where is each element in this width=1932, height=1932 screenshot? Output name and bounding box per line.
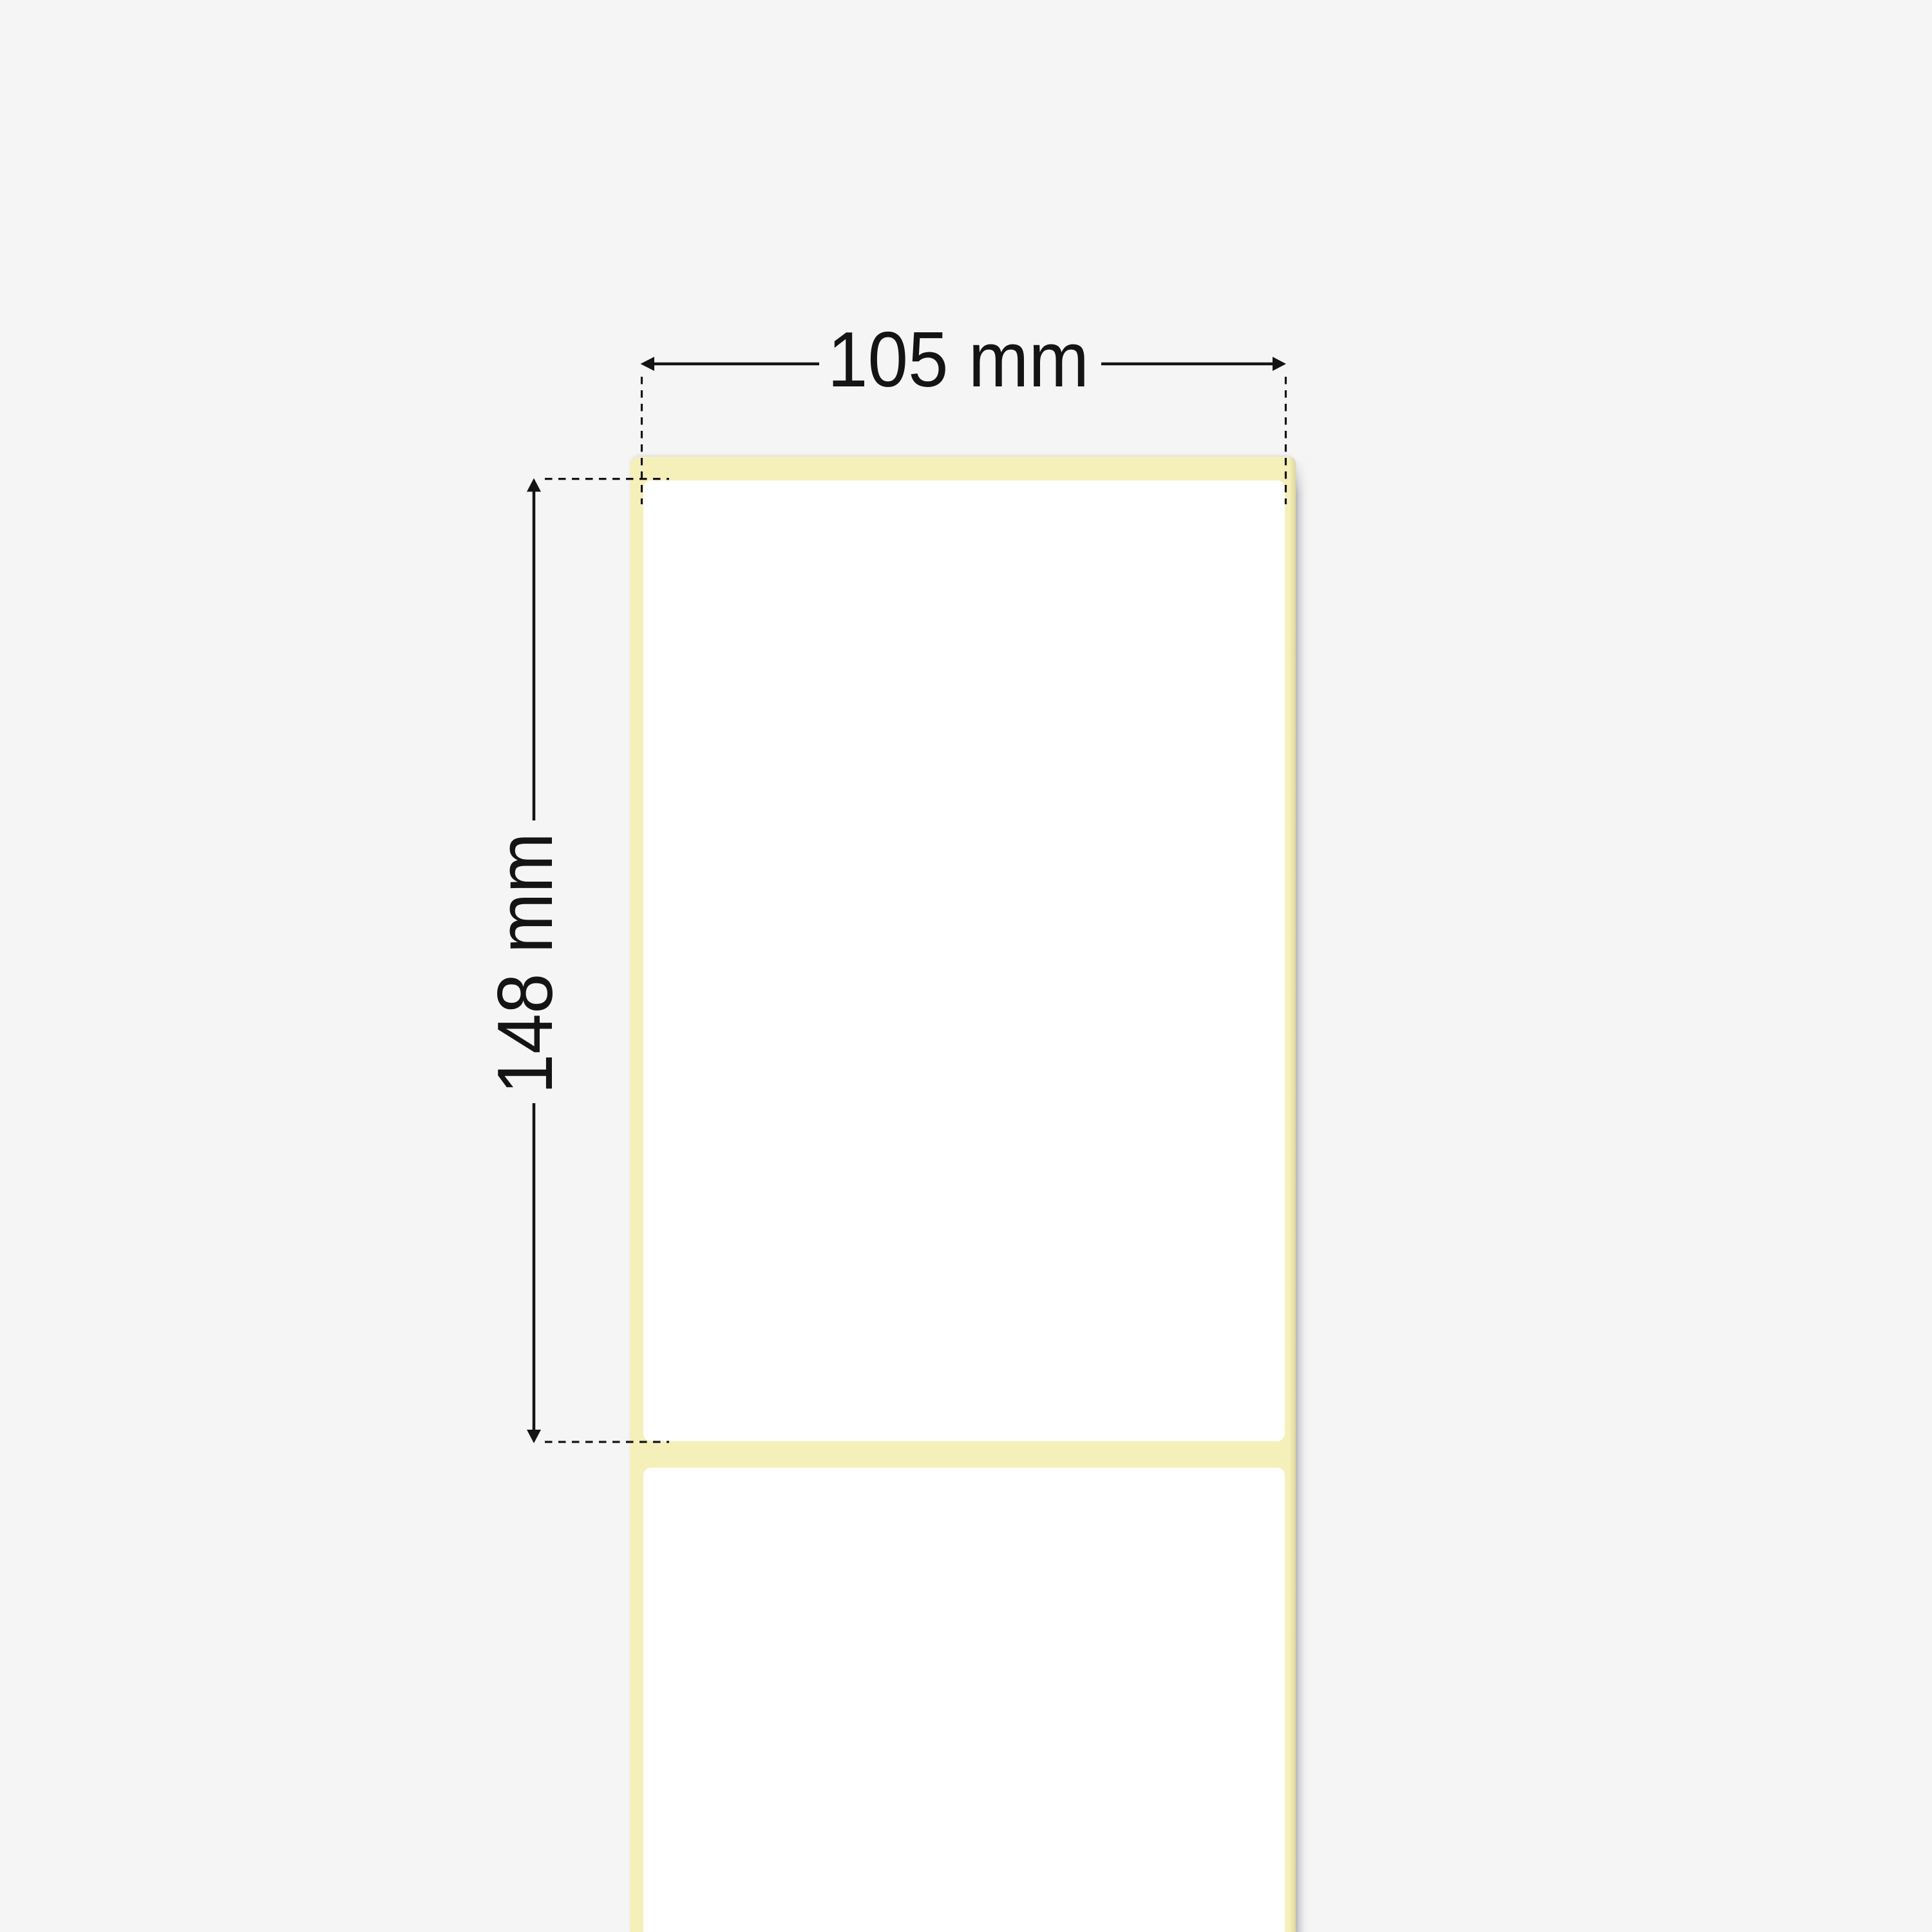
svg-text:148 mm: 148 mm bbox=[481, 833, 569, 1094]
svg-text:105 mm: 105 mm bbox=[828, 316, 1089, 403]
